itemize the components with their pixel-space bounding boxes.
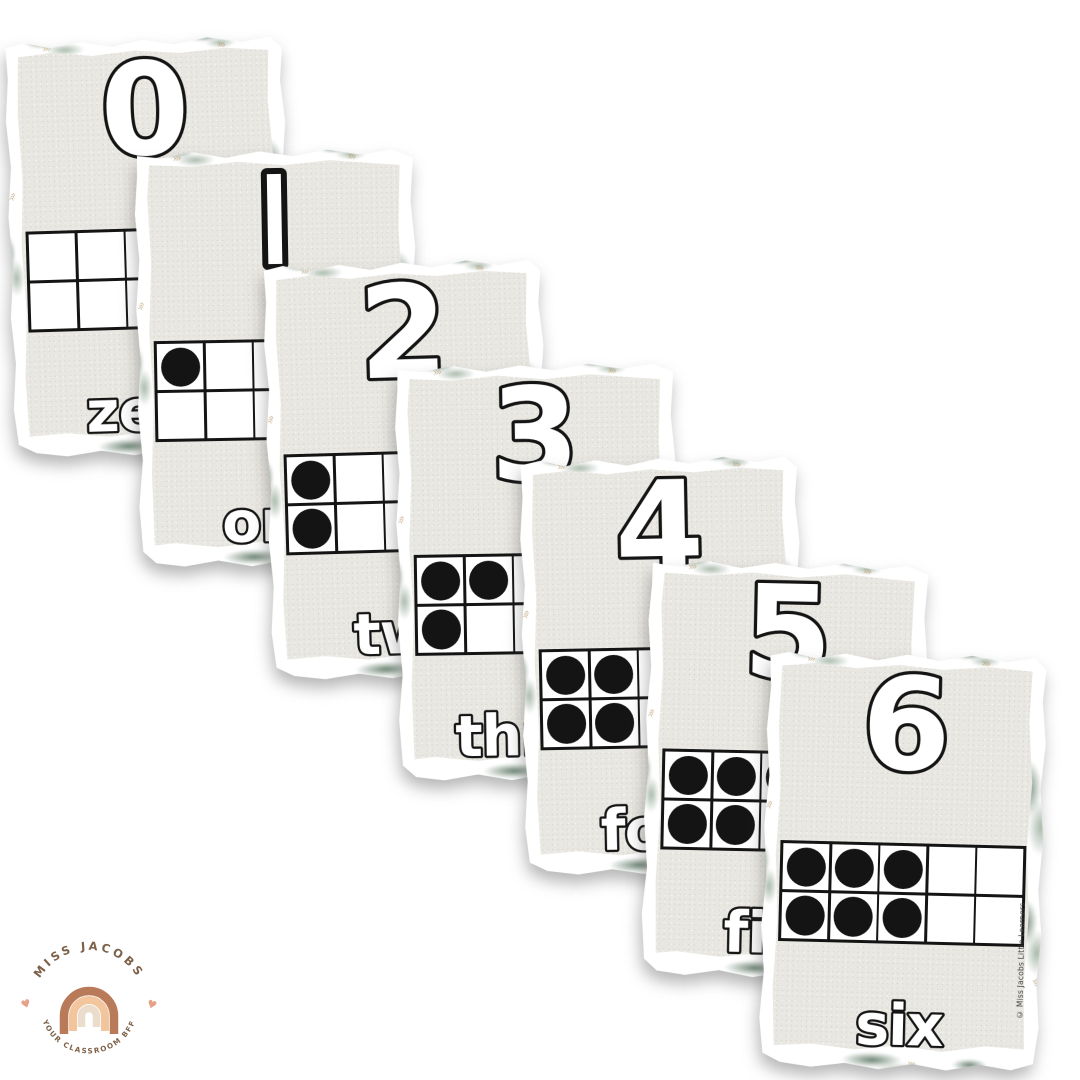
ten-frame-cell <box>206 391 253 438</box>
logo-bottom-text: YOUR CLASSROOM BFF <box>40 1017 137 1055</box>
ten-frame-cell <box>465 556 512 603</box>
heart-icon: ♥ <box>145 997 158 1012</box>
ten-frame-cell <box>976 848 1023 895</box>
counting-dot <box>716 756 756 796</box>
counting-dot <box>290 460 330 500</box>
card-numeral-glyph: 6 <box>860 650 953 801</box>
counting-dot <box>545 655 585 695</box>
ten-frame-cell <box>542 651 589 698</box>
card-number-word: six <box>757 982 1041 1075</box>
heart-icon: ♥ <box>19 996 32 1011</box>
number-flashcard: ›››››››››››››››6six© Miss Jacobs Little … <box>757 650 1049 1075</box>
ten-frame-cell <box>77 232 124 280</box>
ten-frame-cell <box>466 605 513 652</box>
svg-text:MISS JACOBS: MISS JACOBS <box>31 939 148 981</box>
ten-frame-cell <box>664 751 711 798</box>
counting-dot <box>160 347 200 387</box>
ten-frame-cell <box>712 801 759 848</box>
counting-dot <box>785 895 825 935</box>
ten-frame-cell <box>79 280 126 328</box>
counting-dot <box>883 849 923 889</box>
card-numeral: 6 <box>764 660 1049 799</box>
counting-dot <box>834 848 874 888</box>
gold-squiggle-accent: ››› <box>6 192 19 202</box>
ten-frame-cell <box>543 700 590 747</box>
ten-frame-cell <box>30 282 77 330</box>
counting-dot <box>667 804 707 844</box>
counting-dot <box>786 847 826 887</box>
counting-dot <box>833 897 873 937</box>
svg-text:YOUR CLASSROOM BFF: YOUR CLASSROOM BFF <box>40 1017 137 1055</box>
ten-frame-cell <box>781 892 828 939</box>
ten-frame-cell <box>928 847 975 894</box>
counting-dot <box>882 898 922 938</box>
gold-squiggle-accent: ››› <box>763 800 776 811</box>
gold-squiggle-accent: ››› <box>394 515 407 525</box>
gold-squiggle-accent: ››› <box>264 415 277 425</box>
torn-paper-card: ›››››››››››››››6six© Miss Jacobs Little … <box>757 650 1049 1075</box>
logo-top-text: MISS JACOBS <box>31 939 148 981</box>
counting-dot <box>594 654 634 694</box>
ten-frame-cell <box>417 557 464 604</box>
ten-frame-cell <box>418 606 465 653</box>
ten-frame-cell <box>287 456 334 504</box>
counting-dot <box>421 609 461 649</box>
counting-dot <box>420 561 460 601</box>
ten-frame-cell <box>713 753 760 800</box>
gold-squiggle-accent: ››› <box>519 610 532 620</box>
ten-frame-cell <box>879 845 926 892</box>
ten-frame-cell <box>288 505 335 553</box>
gold-squiggle-accent: ››› <box>134 302 147 312</box>
ten-frame-cell <box>975 897 1022 944</box>
ten-frame-cell <box>205 342 252 389</box>
ten-frame-cell <box>878 894 925 941</box>
ten-frame-cell <box>157 343 204 390</box>
copyright-text: © Miss Jacobs Little Learners <box>1015 949 1026 1019</box>
ten-frame-cell <box>591 699 638 746</box>
ten-frame-cell <box>830 893 877 940</box>
ten-frame-cell <box>927 895 974 942</box>
counting-dot <box>595 703 635 743</box>
card-number-word-text: six <box>855 992 944 1060</box>
rainbow-arch-inner-icon <box>82 1009 97 1028</box>
counting-dot <box>546 704 586 744</box>
card-numeral-glyph <box>264 171 286 267</box>
counting-dot <box>292 508 332 548</box>
ten-frame-cell <box>336 503 383 551</box>
ten-frame-cell <box>335 455 382 503</box>
counting-dot <box>715 805 755 845</box>
counting-dot <box>469 560 509 600</box>
counting-dot <box>668 755 708 795</box>
ten-frame <box>778 840 1026 947</box>
brand-logo: MISS JACOBS YOUR CLASSROOM BFF ♥ ♥ <box>16 926 162 1078</box>
brand-logo-svg: MISS JACOBS YOUR CLASSROOM BFF ♥ ♥ <box>16 926 162 1078</box>
ten-frame-cell <box>158 392 205 439</box>
ten-frame-cell <box>663 800 710 847</box>
ten-frame-cell <box>782 843 829 890</box>
ten-frame-cell <box>590 650 637 697</box>
poster-collage-canvas: ›››››››››››››››0zero© Miss Jacobs Little… <box>0 0 1080 1080</box>
ten-frame-cell <box>29 233 76 281</box>
gold-squiggle-accent: ››› <box>644 708 657 719</box>
ten-frame-cell <box>831 844 878 891</box>
